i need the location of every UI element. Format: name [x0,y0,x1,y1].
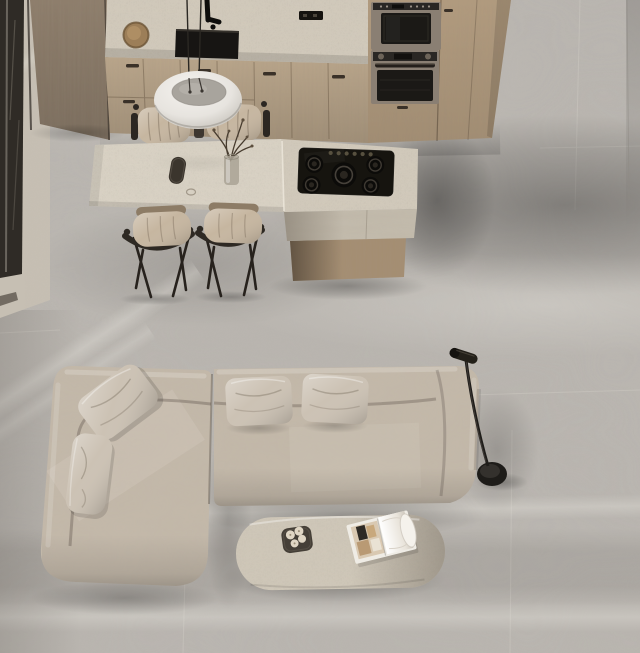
dining-table [87,137,287,215]
tall-cabinets [366,0,514,145]
window-blinds [0,0,24,278]
kitchen-sink [175,29,239,59]
oven-knob-right [425,54,431,60]
kitchen-counter [103,0,370,68]
coffee-table [222,508,451,602]
sofa-pillow-left [225,375,293,426]
sofa-pillow-right [301,373,369,424]
microwave-display [392,5,404,9]
candle-tray [280,525,313,554]
oven-window [377,70,433,101]
oven-drawer-handle [397,106,408,109]
wooden-canister [124,23,149,48]
wall-oven [371,50,439,109]
oven-knob-left [378,54,384,60]
tall-cabinet-handle [444,9,453,12]
interior-photo: Top-down photograph of an open-plan inte… [0,0,640,653]
chair-frame [131,113,138,140]
oven-display [394,54,412,60]
chair-frame [263,110,270,137]
gas-cooktop [297,147,395,196]
wall-outlet [299,11,323,20]
microwave-oven [371,2,441,50]
blind-highlight [6,0,7,272]
